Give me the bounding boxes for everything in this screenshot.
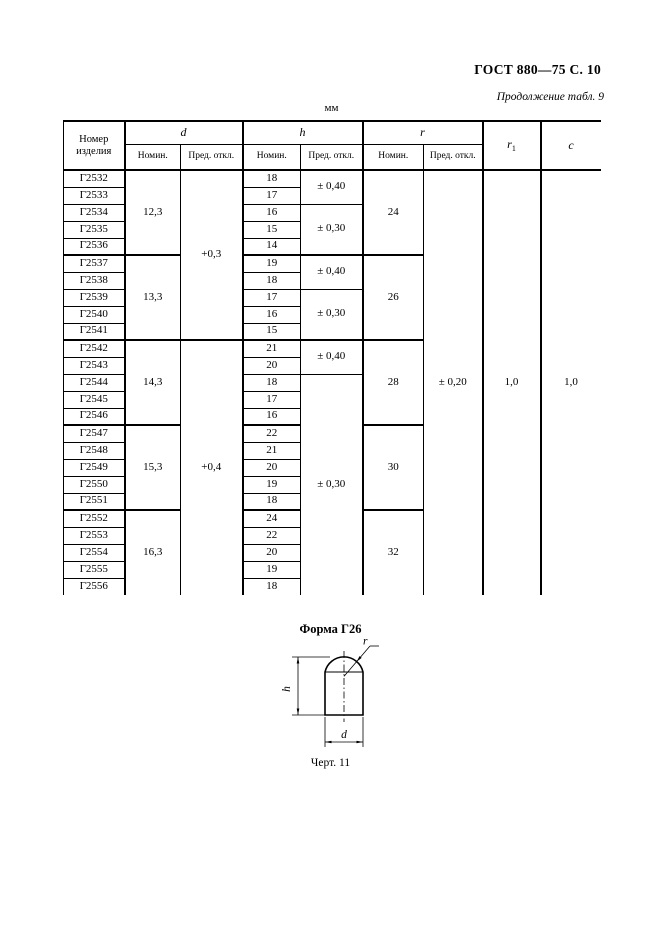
header-r-tolerance: Пред. откл.: [424, 144, 483, 170]
cell-h-nominal: 16: [243, 408, 301, 425]
cell-product-number: Г2538: [64, 272, 125, 289]
header-product-line2: изделия: [76, 146, 111, 157]
doc-reference: ГОСТ 880—75 С. 10: [474, 62, 601, 78]
cell-product-number: Г2554: [64, 544, 125, 561]
cell-d-nominal: 14,3: [125, 340, 181, 425]
cell-product-number: Г2544: [64, 374, 125, 391]
cell-h-nominal: 20: [243, 544, 301, 561]
header-r: r: [363, 121, 483, 144]
header-r1: r1: [483, 121, 541, 170]
header-h-tolerance: Пред. откл.: [301, 144, 363, 170]
cell-h-nominal: 20: [243, 459, 301, 476]
cell-product-number: Г2550: [64, 476, 125, 493]
cell-h-tolerance: ± 0,30: [301, 204, 363, 255]
cell-product-number: Г2535: [64, 221, 125, 238]
cell-h-tolerance: ± 0,40: [301, 255, 363, 289]
cell-product-number: Г2534: [64, 204, 125, 221]
table-header: Номер изделия d h r r1 c Номин. Пред. от…: [64, 121, 601, 170]
units-label: мм: [63, 102, 600, 114]
cell-c-value: 1,0: [541, 170, 601, 595]
cell-h-nominal: 22: [243, 527, 301, 544]
cell-d-nominal: 15,3: [125, 425, 181, 510]
cell-h-nominal: 19: [243, 476, 301, 493]
cell-product-number: Г2533: [64, 187, 125, 204]
header-product-line1: Номер: [79, 134, 108, 145]
cell-h-nominal: 18: [243, 578, 301, 595]
cell-h-nominal: 22: [243, 425, 301, 442]
d-label: d: [341, 729, 347, 741]
cell-h-tolerance: ± 0,40: [301, 340, 363, 374]
cell-h-nominal: 16: [243, 204, 301, 221]
cell-d-tolerance: +0,3: [181, 170, 243, 340]
cell-h-nominal: 16: [243, 306, 301, 323]
cell-r1-value: 1,0: [483, 170, 541, 595]
r-label: r: [363, 636, 368, 648]
table-row: Г253212,3+0,318± 0,4024± 0,201,01,0: [64, 170, 601, 187]
cell-product-number: Г2553: [64, 527, 125, 544]
cell-h-nominal: 14: [243, 238, 301, 255]
header-product-number: Номер изделия: [64, 121, 125, 170]
header-r-nominal: Номин.: [363, 144, 424, 170]
document-page: ГОСТ 880—75 С. 10 Продолжение табл. 9 мм…: [0, 0, 661, 936]
cell-product-number: Г2546: [64, 408, 125, 425]
header-h: h: [243, 121, 363, 144]
cell-product-number: Г2537: [64, 255, 125, 272]
cell-h-nominal: 15: [243, 221, 301, 238]
cell-h-tolerance: ± 0,30: [301, 289, 363, 340]
cell-r-nominal: 32: [363, 510, 424, 595]
cell-h-nominal: 18: [243, 374, 301, 391]
cell-r-nominal: 24: [363, 170, 424, 255]
header-row-groups: Номер изделия d h r r1 c: [64, 121, 601, 144]
header-h-nominal: Номин.: [243, 144, 301, 170]
cell-product-number: Г2539: [64, 289, 125, 306]
header-d: d: [125, 121, 243, 144]
h-arrow-up: [297, 657, 300, 664]
cell-product-number: Г2542: [64, 340, 125, 357]
table-body: Г253212,3+0,318± 0,4024± 0,201,01,0Г2533…: [64, 170, 601, 595]
cell-product-number: Г2556: [64, 578, 125, 595]
cell-product-number: Г2532: [64, 170, 125, 187]
cell-r-nominal: 28: [363, 340, 424, 425]
cell-product-number: Г2555: [64, 561, 125, 578]
dimensions-table: Номер изделия d h r r1 c Номин. Пред. от…: [63, 120, 601, 595]
cell-d-nominal: 16,3: [125, 510, 181, 595]
cell-d-tolerance: +0,4: [181, 340, 243, 595]
figure-caption: Черт. 11: [0, 757, 661, 769]
cell-product-number: Г2543: [64, 357, 125, 374]
cell-h-nominal: 17: [243, 187, 301, 204]
cell-h-nominal: 19: [243, 561, 301, 578]
cell-h-nominal: 18: [243, 272, 301, 289]
cell-h-nominal: 19: [243, 255, 301, 272]
d-arrow-left: [325, 741, 332, 744]
cell-product-number: Г2551: [64, 493, 125, 510]
cell-h-nominal: 17: [243, 289, 301, 306]
cell-product-number: Г2545: [64, 391, 125, 408]
cell-product-number: Г2552: [64, 510, 125, 527]
cell-d-nominal: 12,3: [125, 170, 181, 255]
cell-product-number: Г2548: [64, 442, 125, 459]
cell-h-nominal: 17: [243, 391, 301, 408]
cell-h-nominal: 15: [243, 323, 301, 340]
cell-h-nominal: 18: [243, 493, 301, 510]
cell-h-nominal: 24: [243, 510, 301, 527]
cell-product-number: Г2536: [64, 238, 125, 255]
cell-product-number: Г2549: [64, 459, 125, 476]
cell-h-tolerance: ± 0,30: [301, 374, 363, 595]
shape-drawing: r h d: [280, 634, 390, 752]
h-label: h: [281, 686, 293, 692]
cell-h-nominal: 21: [243, 442, 301, 459]
cell-r-nominal: 26: [363, 255, 424, 340]
cell-h-nominal: 21: [243, 340, 301, 357]
header-d-nominal: Номин.: [125, 144, 181, 170]
header-d-tolerance: Пред. откл.: [181, 144, 243, 170]
cell-r-tolerance: ± 0,20: [424, 170, 483, 595]
cell-d-nominal: 13,3: [125, 255, 181, 340]
cell-h-nominal: 20: [243, 357, 301, 374]
h-arrow-down: [297, 709, 300, 716]
cell-h-nominal: 18: [243, 170, 301, 187]
cell-product-number: Г2547: [64, 425, 125, 442]
header-c: c: [541, 121, 601, 170]
cell-product-number: Г2540: [64, 306, 125, 323]
d-arrow-right: [357, 741, 364, 744]
cell-r-nominal: 30: [363, 425, 424, 510]
cell-product-number: Г2541: [64, 323, 125, 340]
cell-h-tolerance: ± 0,40: [301, 170, 363, 204]
